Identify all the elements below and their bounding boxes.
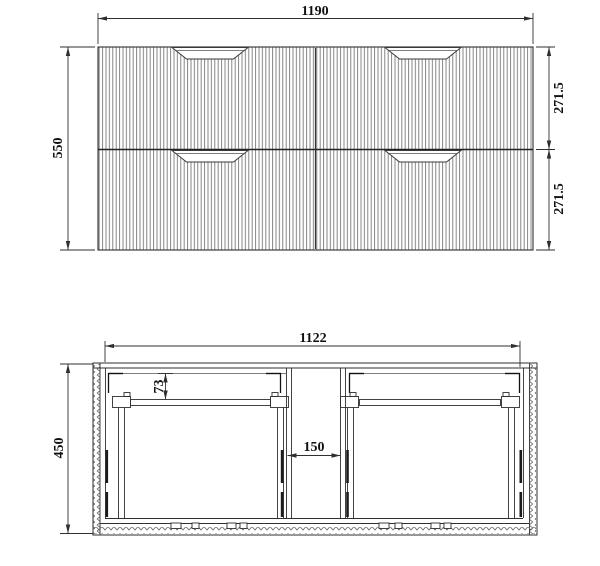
dimension-overall-height: 550 xyxy=(51,47,95,250)
dimension-center-gap: 150 xyxy=(288,440,341,458)
dimension-runner-setback: 73 xyxy=(152,374,173,400)
fluted-front-section xyxy=(94,519,536,535)
dimension-overall-width: 1190 xyxy=(98,4,533,44)
left-side-panel xyxy=(94,363,106,535)
dimension-drawer-heights: 271.5 271.5 xyxy=(536,47,567,250)
dim-label-overall-height: 550 xyxy=(51,138,66,159)
dim-label-bottom-drawer-height: 271.5 xyxy=(552,183,567,215)
dim-label-overall-width: 1190 xyxy=(301,4,328,19)
dim-label-internal-width: 1122 xyxy=(299,331,326,346)
dim-label-top-drawer-height: 271.5 xyxy=(552,82,567,114)
dim-label-overall-depth: 450 xyxy=(52,438,67,459)
plan-section-view: 1122 450 73 150 xyxy=(52,331,537,535)
front-elevation-view: 1190 550 271.5 271.5 xyxy=(51,4,567,250)
right-side-panel xyxy=(524,363,537,535)
dimension-internal-width: 1122 xyxy=(105,331,520,367)
right-drawer-box xyxy=(341,393,520,519)
dimension-overall-depth: 450 xyxy=(52,364,93,534)
drawer-runners xyxy=(106,450,523,517)
top-stretcher-left-bay xyxy=(108,373,286,393)
top-stretcher-right-bay xyxy=(349,373,520,393)
dim-label-center-gap: 150 xyxy=(304,440,325,455)
dim-label-runner-setback: 73 xyxy=(152,380,167,394)
technical-drawing-canvas: 1190 550 271.5 271.5 xyxy=(0,0,600,566)
drawing-svg: 1190 550 271.5 271.5 xyxy=(0,0,600,566)
left-drawer-box xyxy=(113,393,289,519)
